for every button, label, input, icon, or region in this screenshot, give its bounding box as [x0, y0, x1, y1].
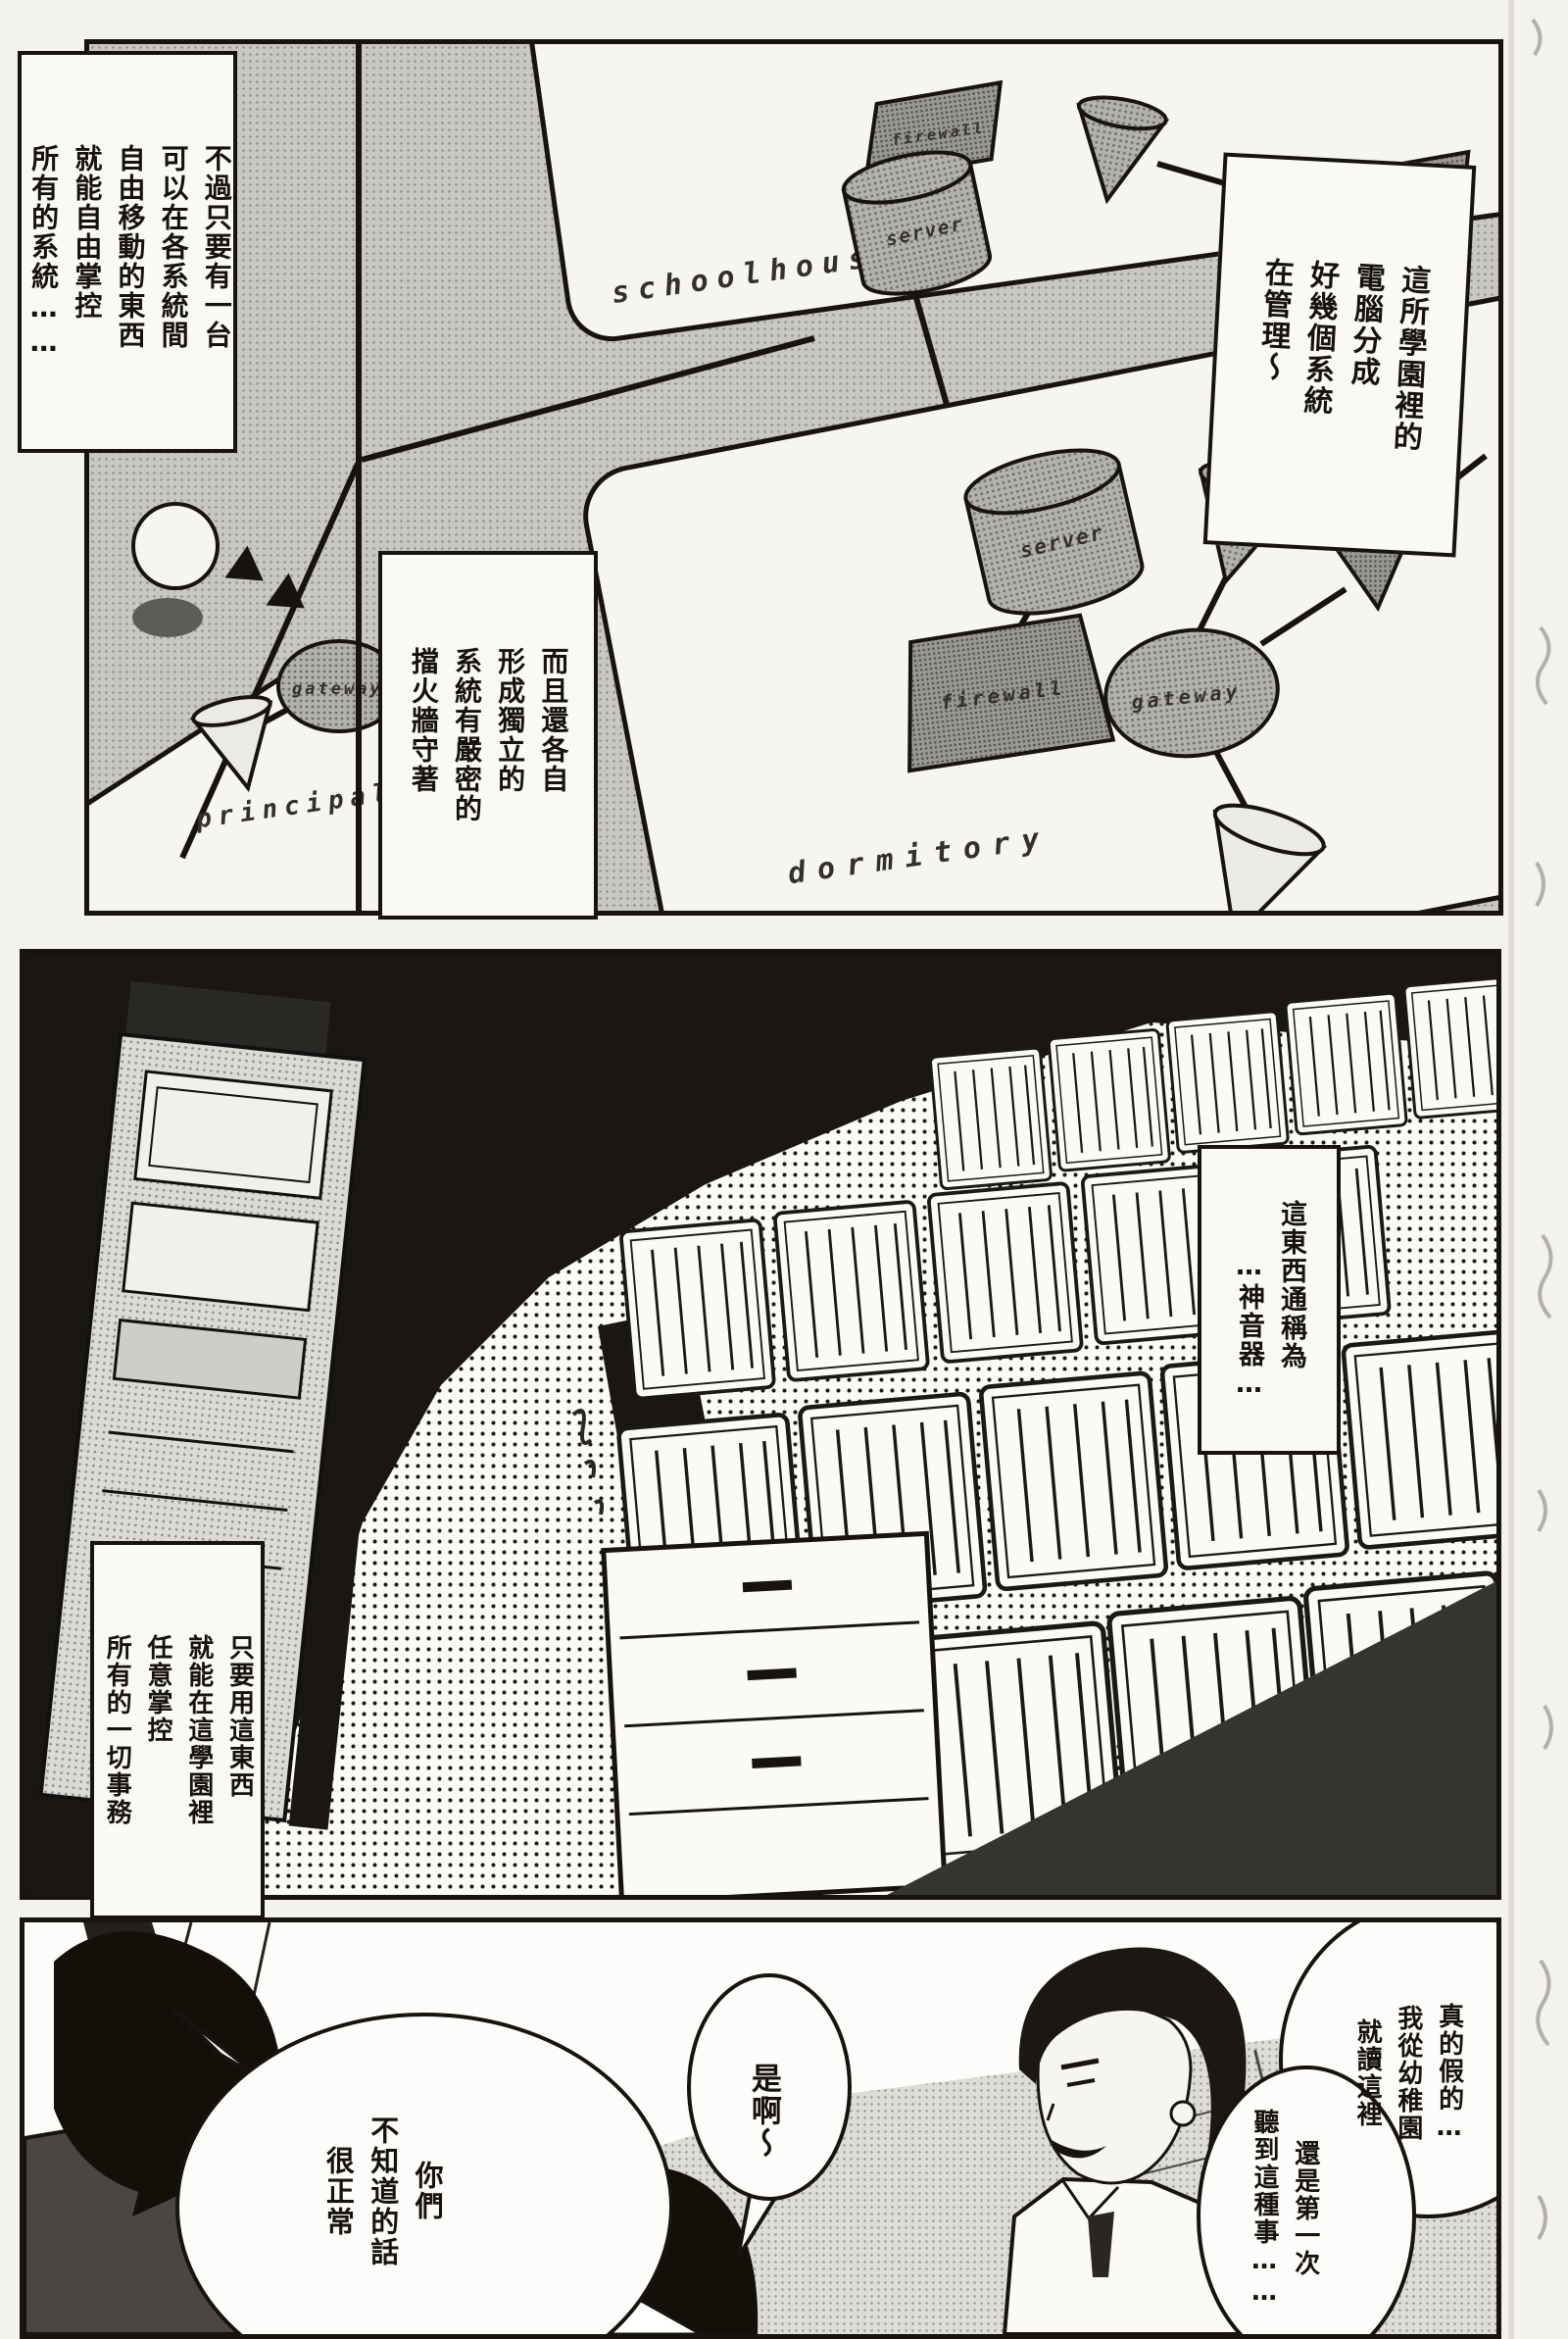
balloon-line: 是啊～ — [739, 2063, 786, 2160]
caption-line: 這東西通稱為 — [1269, 1200, 1311, 1401]
drawer-cabinet — [604, 1533, 945, 1895]
caption-systems-managed: 這所學園裡的 電腦分成 好幾個系統 在管理～ — [1203, 153, 1477, 558]
balloon-line: 聽到這種事…… — [1243, 2109, 1284, 2309]
sphere-device-icon — [133, 504, 218, 588]
caption-line: 不過只要有一台 — [195, 144, 238, 360]
caption-line: 所有的系統…… — [22, 144, 65, 360]
manga-page: schoolhouse firewall server — [0, 0, 1568, 2339]
balloon-line: 不知道的話 — [360, 2115, 404, 2267]
balloon-text-normal: 你們 不知道的話 很正常 — [294, 2059, 470, 2323]
shadow-blob — [132, 598, 203, 637]
balloon-line: 就讀這裡 — [1346, 2003, 1387, 2144]
caption-line: 系統有嚴密的 — [445, 647, 488, 823]
caption-line: …神音器… — [1227, 1251, 1269, 1401]
caption-firewalls: 而且還各自 形成獨立的 系統有嚴密的 擋火牆守著 — [378, 551, 598, 920]
caption-line: 形成獨立的 — [488, 647, 531, 823]
caption-line: 可以在各系統間 — [151, 144, 194, 360]
balloon-text-first-time: 還是第一次 聽到這種事…… — [1237, 2086, 1331, 2331]
caption-line: 自由移動的東西 — [108, 144, 151, 360]
balloon-text-yeah: 是啊～ — [733, 2017, 792, 2204]
balloon-line: 還是第一次 — [1284, 2109, 1325, 2309]
balloon-line: 我從幼稚園 — [1387, 2003, 1428, 2144]
balloon-line: 真的假的… — [1428, 2003, 1469, 2144]
caption-line: 所有的一切事務 — [96, 1634, 137, 1826]
torn-paper-edge — [1503, 0, 1568, 2339]
caption-control-everything: 只要用這東西 就能在這學園裡 任意掌控 所有的一切事務 — [90, 1541, 265, 1919]
caption-line: 而且還各自 — [531, 647, 574, 823]
svg-text:gateway: gateway — [292, 679, 383, 699]
caption-line: 只要用這東西 — [219, 1634, 260, 1826]
balloon-line: 很正常 — [316, 2115, 360, 2267]
caption-line: 任意掌控 — [136, 1634, 177, 1826]
caption-free-device: 不過只要有一台 可以在各系統間 自由移動的東西 就能自由掌控 所有的系統…… — [18, 51, 237, 453]
ear — [1171, 2102, 1195, 2125]
caption-device-name: 這東西通稱為 …神音器… — [1198, 1145, 1341, 1455]
caption-line: 就能在這學園裡 — [177, 1634, 219, 1826]
balloon-text-really: 真的假的… 我從幼稚園 就讀這裡 — [1341, 1961, 1474, 2186]
balloon-line: 你們 — [405, 2115, 449, 2267]
caption-line: 擋火牆守著 — [402, 647, 445, 823]
caption-line: 就能自由掌控 — [65, 144, 108, 360]
